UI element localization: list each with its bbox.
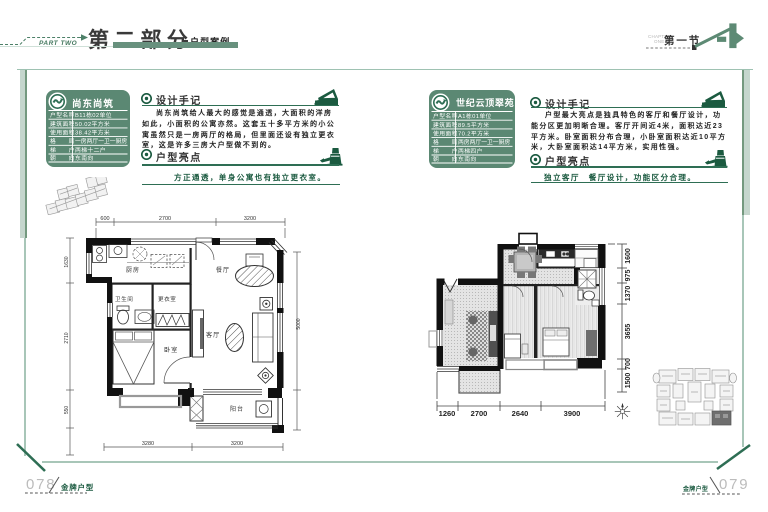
svg-text:1500: 1500 bbox=[625, 373, 632, 389]
svg-text:客厅: 客厅 bbox=[206, 331, 220, 339]
svg-text:70.2平方米: 70.2平方米 bbox=[458, 130, 489, 138]
svg-text:2710: 2710 bbox=[64, 332, 70, 343]
svg-text:使用面积: 使用面积 bbox=[50, 129, 75, 137]
svg-text:格 局: 格 局 bbox=[433, 138, 458, 146]
svg-text:厨房: 厨房 bbox=[126, 266, 140, 274]
svg-text:户型名称: 户型名称 bbox=[433, 112, 458, 120]
svg-text:一房两厅一卫一厨房: 一房两厅一卫一厨房 bbox=[75, 137, 127, 145]
svg-text:B11栋02单位: B11栋02单位 bbox=[75, 111, 112, 119]
svg-text:975: 975 bbox=[625, 270, 632, 282]
svg-text:550: 550 bbox=[64, 406, 70, 415]
svg-text:建筑面积: 建筑面积 bbox=[50, 120, 75, 128]
svg-text:5000: 5000 bbox=[296, 318, 302, 329]
svg-text:38.42平方米: 38.42平方米 bbox=[75, 129, 110, 137]
svg-text:户型名称: 户型名称 bbox=[50, 111, 75, 119]
svg-text:朝 向: 朝 向 bbox=[50, 154, 75, 162]
svg-text:两房两厅一卫一厨房: 两房两厅一卫一厨房 bbox=[458, 138, 510, 146]
svg-text:两梯十二户: 两梯十二户 bbox=[75, 146, 106, 154]
svg-text:格 局: 格 局 bbox=[50, 137, 75, 145]
svg-text:A1栋01单位: A1栋01单位 bbox=[458, 112, 492, 120]
svg-text:3200: 3200 bbox=[231, 441, 243, 447]
svg-text:700: 700 bbox=[625, 358, 632, 370]
svg-text:3280: 3280 bbox=[142, 441, 154, 447]
svg-text:1260: 1260 bbox=[439, 409, 456, 418]
svg-text:梯 户: 梯 户 bbox=[50, 146, 75, 154]
svg-text:600: 600 bbox=[100, 216, 109, 222]
svg-text:3200: 3200 bbox=[244, 216, 256, 222]
svg-text:89.5平方米: 89.5平方米 bbox=[458, 121, 489, 129]
svg-text:2700: 2700 bbox=[471, 409, 488, 418]
svg-text:2640: 2640 bbox=[512, 409, 529, 418]
svg-text:1370: 1370 bbox=[625, 286, 632, 302]
svg-text:卫生间: 卫生间 bbox=[115, 295, 133, 303]
svg-text:2700: 2700 bbox=[159, 216, 171, 222]
svg-text:东南向: 东南向 bbox=[75, 154, 94, 162]
svg-text:建筑面积: 建筑面积 bbox=[433, 121, 458, 129]
svg-text:3900: 3900 bbox=[564, 409, 581, 418]
svg-text:朝 向: 朝 向 bbox=[433, 155, 458, 163]
svg-text:1600: 1600 bbox=[625, 248, 632, 264]
svg-text:更衣室: 更衣室 bbox=[158, 295, 176, 303]
svg-text:卧室: 卧室 bbox=[164, 346, 178, 354]
svg-text:餐厅: 餐厅 bbox=[216, 266, 230, 274]
svg-text:1630: 1630 bbox=[64, 256, 70, 267]
svg-text:两梯四户: 两梯四户 bbox=[458, 147, 483, 155]
svg-text:3655: 3655 bbox=[625, 324, 632, 340]
svg-text:使用面积: 使用面积 bbox=[433, 130, 458, 138]
svg-text:梯 户: 梯 户 bbox=[433, 147, 458, 155]
svg-text:50.02平方米: 50.02平方米 bbox=[75, 120, 110, 128]
svg-text:阳台: 阳台 bbox=[230, 405, 244, 413]
svg-text:东南向: 东南向 bbox=[458, 155, 477, 163]
